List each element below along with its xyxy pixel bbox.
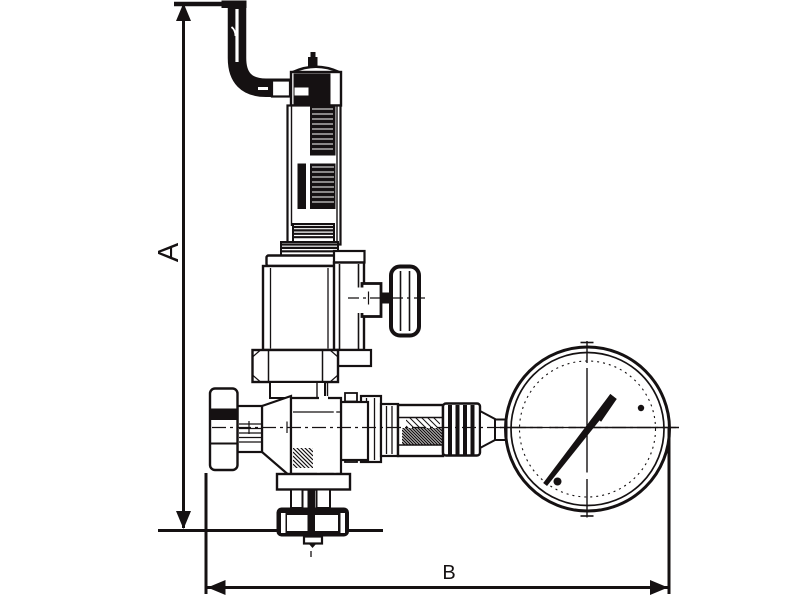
svg-text:A: A bbox=[153, 242, 185, 262]
svg-text:B: B bbox=[442, 562, 455, 584]
